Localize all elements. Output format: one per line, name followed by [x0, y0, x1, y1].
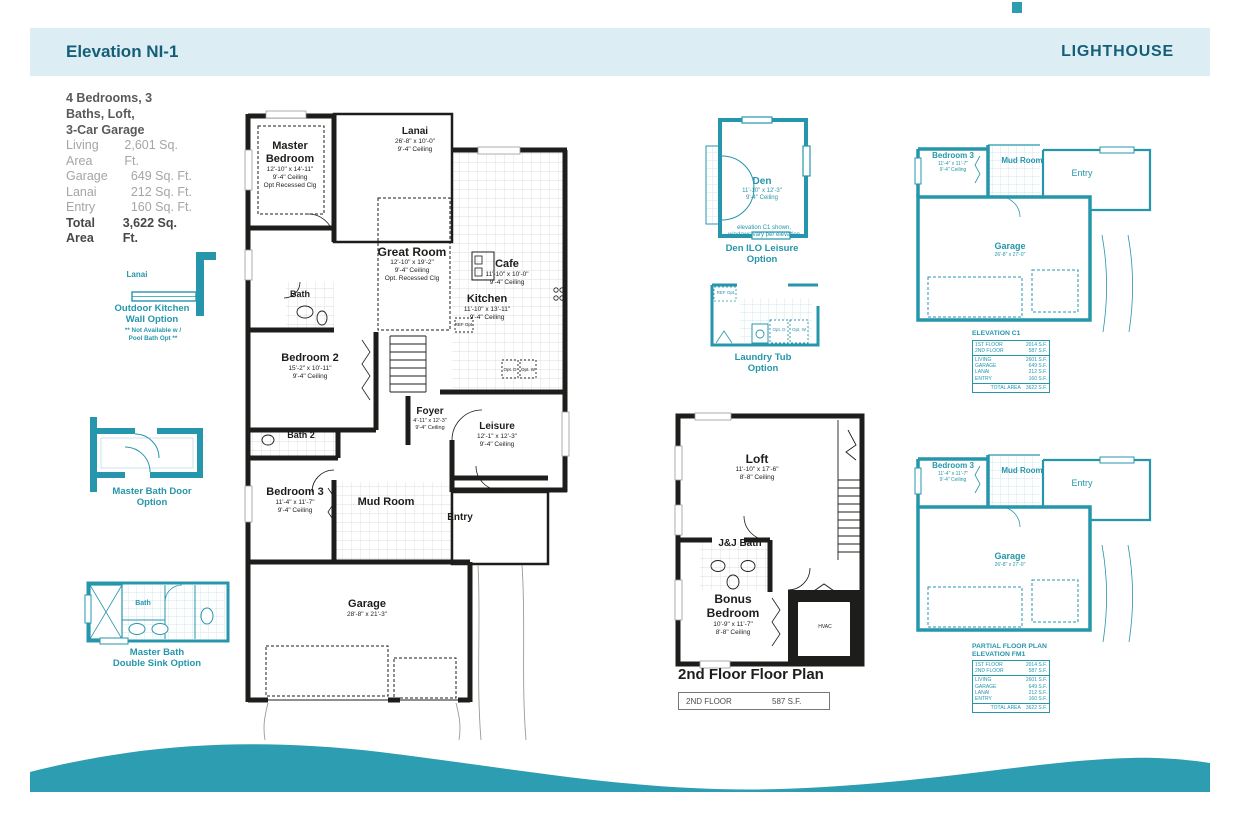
total-row: TOTAL AREA3622 S.F. [973, 704, 1049, 712]
stat-value: 587 S.F. [1029, 348, 1047, 354]
room-dims: 26'-8" x 27'-0" [994, 252, 1025, 258]
room-name: Den [742, 176, 782, 188]
laundry-option-caption: Laundry Tub Option [735, 352, 792, 374]
second-floor-caption: 2nd Floor Floor Plan [678, 666, 824, 683]
c1-room-label-entry: Entry [1071, 168, 1092, 179]
room-ceiling: 9'-4" Ceiling [281, 373, 338, 381]
c1-room-label-mud-room: Mud Room [1001, 156, 1042, 166]
stat-value: 160 S.F. [1029, 696, 1047, 702]
table-row: 2ND FLOOR587 S.F. [975, 668, 1047, 674]
room-label-bath: Bath [290, 289, 310, 300]
stat-label: TOTAL AREA [991, 705, 1021, 711]
room-name: Entry [447, 512, 473, 524]
room-ceiling: 9'-4" Ceiling [266, 507, 323, 515]
room-ceiling: 9'-4" Ceiling [932, 477, 974, 483]
room-ceiling: 9'-4" Ceiling [256, 174, 324, 182]
summary-block: 4 Bedrooms, 3 Baths, Loft, 3-Car Garage … [66, 90, 192, 247]
fm1-room-label-entry: Entry [1071, 478, 1092, 489]
room-name: Garage [347, 598, 387, 611]
room-name: J&J Bath [718, 538, 761, 550]
stat-label: Garage [66, 169, 108, 185]
room-label-foyer: Foyer 4'-11" x 12'-3" 9'-4" Ceiling [413, 406, 446, 431]
stats-table: 1ST FLOOR2014 S.F. 2ND FLOOR587 S.F. LIV… [972, 660, 1050, 713]
room-dims: 11'-10" x 10'-0" [485, 271, 528, 279]
room-name: Leisure [477, 421, 517, 433]
laundry-ref-label: REF Opt. [717, 290, 736, 295]
stat-value: 3,622 Sq. Ft. [123, 216, 192, 247]
caption-line: Option [735, 363, 792, 374]
elevation-fm1-stats: PARTIAL FLOOR PLAN ELEVATION FM1 1ST FLO… [972, 643, 1050, 713]
elevation-c1-stats: ELEVATION C1 1ST FLOOR2014 S.F. 2ND FLOO… [972, 330, 1050, 393]
stat-value: 160 Sq. Ft. [131, 200, 192, 216]
caption-line: Wall Option [115, 314, 190, 325]
room-note: Opt. Recessed Clg [378, 275, 447, 283]
stat-value: 649 Sq. Ft. [131, 169, 192, 185]
room-name: Garage [994, 241, 1025, 252]
caption-line: Double Sink Option [113, 658, 201, 669]
note-line: Pool Bath Opt ** [125, 335, 181, 343]
opt-washer-label: Opt. W [521, 367, 535, 372]
room-ceiling: 9'-4" Ceiling [395, 146, 435, 154]
room-dims: 11'-4" x 11'-7" [266, 499, 323, 507]
room-dims: 11'-10" x 13'-11" [464, 306, 510, 314]
room-name: Great Room [378, 245, 447, 259]
room-ceiling: 9'-4" Ceiling [378, 267, 447, 275]
c1-room-label-bedroom3: Bedroom 3 11'-4" x 11'-7" 9'-4" Ceiling [932, 151, 974, 173]
room-dims: 4'-11" x 12'-3" [413, 418, 446, 425]
summary-row-lanai: Lanai 212 Sq. Ft. [66, 185, 192, 201]
areas-section: LIVING2601 S.F. GARAGE649 S.F. LANAI212 … [973, 356, 1049, 384]
room-label-cafe: Cafe 11'-10" x 10'-0" 9'-4" Ceiling [485, 258, 528, 287]
room-label-leisure: Leisure 12'-1" x 12'-3" 9'-4" Ceiling [477, 421, 517, 449]
caption-line: Option [112, 497, 191, 508]
master-bath-double-sink-option-diagram [85, 583, 228, 644]
total-row: TOTAL AREA3622 S.F. [973, 384, 1049, 392]
room-name: Loft [735, 452, 778, 466]
hvac-label: HVAC [818, 624, 832, 630]
room-name: Bedroom 3 [932, 461, 974, 471]
brochure-page: Elevation NI-1 LIGHTHOUSE 4 Bedrooms, 3 … [0, 0, 1240, 819]
room-label-kitchen: Kitchen 11'-10" x 13'-11" 9'-4" Ceiling [464, 293, 510, 322]
room-dims: 11'-4" x 11'-7" [932, 161, 974, 167]
room-dims: 28'-8" x 21'-3" [347, 611, 387, 619]
second-floor-area-table: 2ND FLOOR 587 S.F. [678, 692, 830, 710]
outdoor-kitchen-room-label: Lanai [127, 270, 148, 280]
stat-value: 3622 S.F. [1026, 705, 1047, 711]
room-label-garage: Garage 28'-8" x 21'-3" [347, 598, 387, 619]
room-dims: 15'-2" x 10'-11" [281, 365, 338, 373]
table-row: ENTRY160 S.F. [975, 696, 1047, 702]
summary-row-entry: Entry 160 Sq. Ft. [66, 200, 192, 216]
laundry-opt-dryer-label: Opt. D [772, 327, 785, 332]
room-dims: 11'-10" x 17'-6" [735, 466, 778, 474]
room-dims: 11'-4" x 11'-7" [932, 471, 974, 477]
opt-dryer-label: Opt. D [503, 367, 516, 372]
stat-label: 2ND FLOOR [975, 668, 1004, 674]
room-name: Bath 2 [287, 430, 315, 441]
fm1-room-label-mud-room: Mud Room [1001, 466, 1042, 476]
room-label-loft: Loft 11'-10" x 17'-6" 8'-8" Ceiling [735, 452, 778, 482]
footer-wave [30, 744, 1210, 792]
room-dims: 12'-1" x 12'-3" [477, 433, 517, 441]
room-label-entry: Entry [447, 512, 473, 524]
room-dims: 26'-8" x 10'-0" [395, 138, 435, 146]
room-name: Bath [290, 289, 310, 300]
sink-option-room-label: Bath [135, 600, 151, 608]
room-label-master-bedroom: Master Bedroom 12'-10" x 14'-11" 9'-4" C… [256, 140, 324, 190]
room-label-bedroom2: Bedroom 2 15'-2" x 10'-11" 9'-4" Ceiling [281, 352, 338, 381]
note-line: ** Not Available w / [125, 327, 181, 335]
room-note: Opt Recessed Clg [256, 182, 324, 190]
room-label-bedroom3: Bedroom 3 11'-4" x 11'-7" 9'-4" Ceiling [266, 486, 323, 515]
master-bath-door-option-diagram [90, 417, 203, 492]
room-label-mud-room: Mud Room [358, 496, 415, 509]
room-dims: 12'-10" x 14'-11" [256, 166, 324, 174]
caption-line: Option [726, 254, 799, 265]
outdoor-kitchen-option-caption: Outdoor Kitchen Wall Option [115, 303, 190, 325]
room-name: Master Bedroom [256, 140, 324, 166]
table-title: ELEVATION C1 [972, 330, 1050, 338]
table-row: 2ND FLOOR587 S.F. [975, 348, 1047, 354]
stat-label: Total Area [66, 216, 123, 247]
elevation-c1-partial-plan [915, 145, 1150, 332]
stats-table: 1ST FLOOR2014 S.F. 2ND FLOOR587 S.F. LIV… [972, 340, 1050, 393]
stat-label: 2ND FLOOR [975, 348, 1004, 354]
caption-line: Master Bath [113, 647, 201, 658]
stat-value: 212 Sq. Ft. [131, 185, 192, 201]
fm1-room-label-bedroom3: Bedroom 3 11'-4" x 11'-7" 9'-4" Ceiling [932, 461, 974, 483]
room-name: Garage [994, 551, 1025, 562]
room-dims: 10'-9" x 11'-7" [697, 621, 769, 629]
room-ceiling: 9'-4" Ceiling [742, 195, 782, 202]
room-label-jj-bath: J&J Bath [718, 538, 761, 550]
room-label-bonus-bedroom: Bonus Bedroom 10'-9" x 11'-7" 8'-8" Ceil… [697, 592, 769, 636]
room-dims: 26'-8" x 27'-0" [994, 562, 1025, 568]
summary-line1: 4 Bedrooms, 3 Baths, Loft, [66, 90, 192, 122]
den-option-note: elevation C1 shown, windows vary per ele… [728, 225, 800, 239]
stat-label: Living Area [66, 138, 124, 169]
room-ceiling: 9'-4" Ceiling [464, 314, 510, 322]
room-name: Bonus Bedroom [697, 592, 769, 621]
ref-opt-label: REF Opt. [455, 322, 474, 327]
room-ceiling: 8'-8" Ceiling [735, 474, 778, 482]
room-dims: 11'-10" x 12'-3" [742, 188, 782, 195]
stat-label: Lanai [66, 185, 97, 201]
table-title: PARTIAL FLOOR PLAN [972, 643, 1050, 651]
room-name: Cafe [485, 258, 528, 271]
caption-line: Master Bath Door [112, 486, 191, 497]
first-floor-plan [245, 111, 569, 740]
master-bath-sink-option-caption: Master Bath Double Sink Option [113, 647, 201, 669]
summary-row-garage: Garage 649 Sq. Ft. [66, 169, 192, 185]
room-dims: 12'-10" x 19'-2" [378, 259, 447, 267]
room-label-great-room: Great Room 12'-10" x 19'-2" 9'-4" Ceilin… [378, 245, 447, 283]
table-row: ENTRY160 S.F. [975, 376, 1047, 382]
room-name: Bedroom 2 [281, 352, 338, 365]
note-line: elevation C1 shown, [728, 225, 800, 232]
fm1-room-label-garage: Garage 26'-8" x 27'-0" [994, 551, 1025, 568]
room-label-lanai: Lanai 26'-8" x 10'-0" 9'-4" Ceiling [395, 126, 435, 154]
caption-line: Outdoor Kitchen [115, 303, 190, 314]
stat-label: 2ND FLOOR [679, 697, 772, 706]
room-ceiling: 9'-4" Ceiling [413, 425, 446, 432]
stat-value: 587 S.F. [1029, 668, 1047, 674]
stat-value: 3622 S.F. [1026, 385, 1047, 391]
room-name: Lanai [395, 126, 435, 138]
stat-label: ENTRY [975, 376, 992, 382]
table-title: ELEVATION FM1 [972, 651, 1050, 659]
room-ceiling: 8'-8" Ceiling [697, 629, 769, 637]
room-name: Mud Room [358, 496, 415, 509]
room-label-bath2: Bath 2 [287, 430, 315, 441]
caption-line: Laundry Tub [735, 352, 792, 363]
room-ceiling: 9'-4" Ceiling [485, 279, 528, 287]
elevation-fm1-partial-plan [915, 455, 1150, 642]
room-label-den: Den 11'-10" x 12'-3" 9'-4" Ceiling [742, 176, 782, 202]
note-line: windows vary per elevation [728, 232, 800, 239]
stat-label: TOTAL AREA [991, 385, 1021, 391]
stat-value: 587 S.F. [772, 697, 801, 706]
room-name: Kitchen [464, 293, 510, 306]
room-name: Bedroom 3 [932, 151, 974, 161]
stat-value: 160 S.F. [1029, 376, 1047, 382]
stat-value: 2,601 Sq. Ft. [124, 138, 192, 169]
c1-room-label-garage: Garage 26'-8" x 27'-0" [994, 241, 1025, 258]
room-ceiling: 9'-4" Ceiling [477, 441, 517, 449]
summary-row-living: Living Area 2,601 Sq. Ft. [66, 138, 192, 169]
stat-label: Entry [66, 200, 95, 216]
outdoor-kitchen-option-note: ** Not Available w / Pool Bath Opt ** [125, 327, 181, 342]
summary-row-total: Total Area 3,622 Sq. Ft. [66, 216, 192, 247]
stat-label: ENTRY [975, 696, 992, 702]
room-name: Bedroom 3 [266, 486, 323, 499]
den-option-caption: Den ILO Leisure Option [726, 243, 799, 265]
floors-section: 1ST FLOOR2014 S.F. 2ND FLOOR587 S.F. [973, 661, 1049, 676]
laundry-opt-washer-label: Opt. W [792, 327, 806, 332]
caption-line: Den ILO Leisure [726, 243, 799, 254]
floors-section: 1ST FLOOR2014 S.F. 2ND FLOOR587 S.F. [973, 341, 1049, 356]
master-bath-door-option-caption: Master Bath Door Option [112, 486, 191, 508]
areas-section: LIVING2601 S.F. GARAGE649 S.F. LANAI212 … [973, 676, 1049, 704]
room-ceiling: 9'-4" Ceiling [932, 167, 974, 173]
summary-line2: 3-Car Garage [66, 122, 192, 138]
room-name: Foyer [413, 406, 446, 418]
